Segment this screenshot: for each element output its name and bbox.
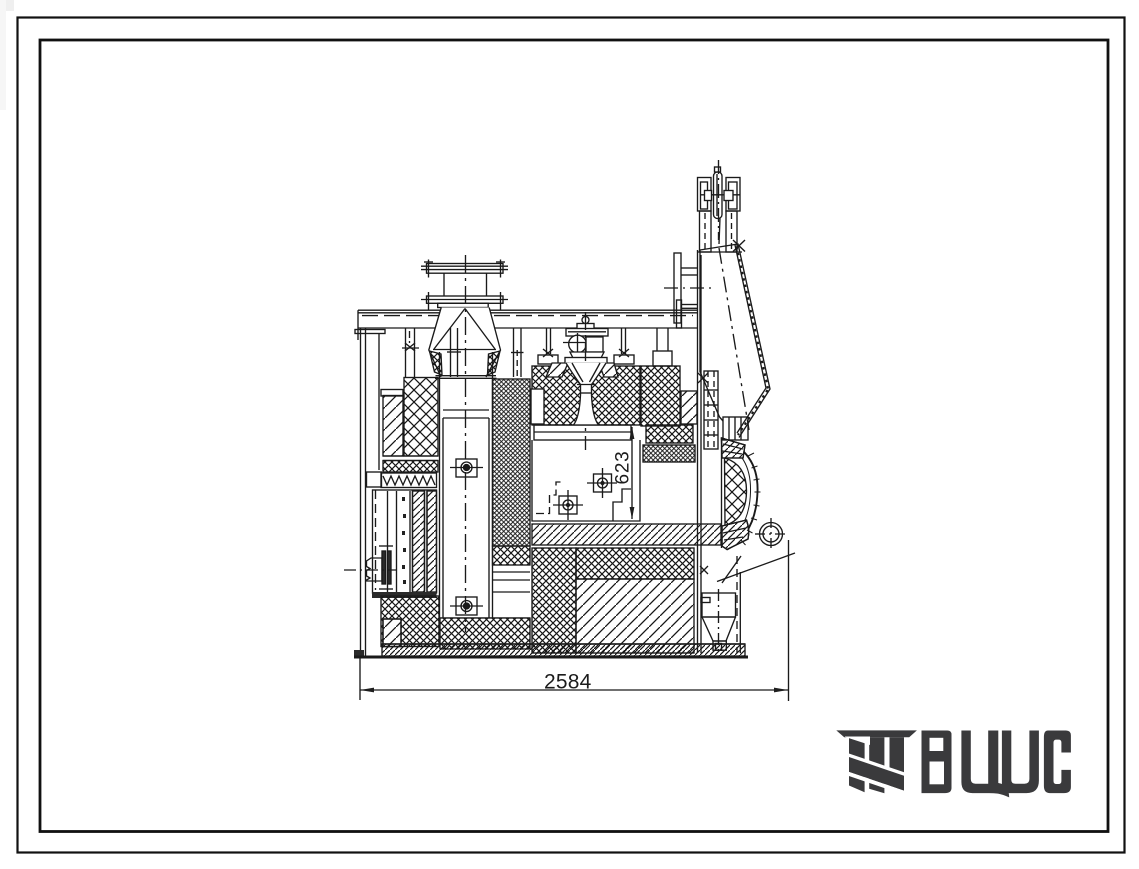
svg-text:2584: 2584 [544, 671, 592, 694]
svg-text:623: 623 [613, 450, 634, 484]
